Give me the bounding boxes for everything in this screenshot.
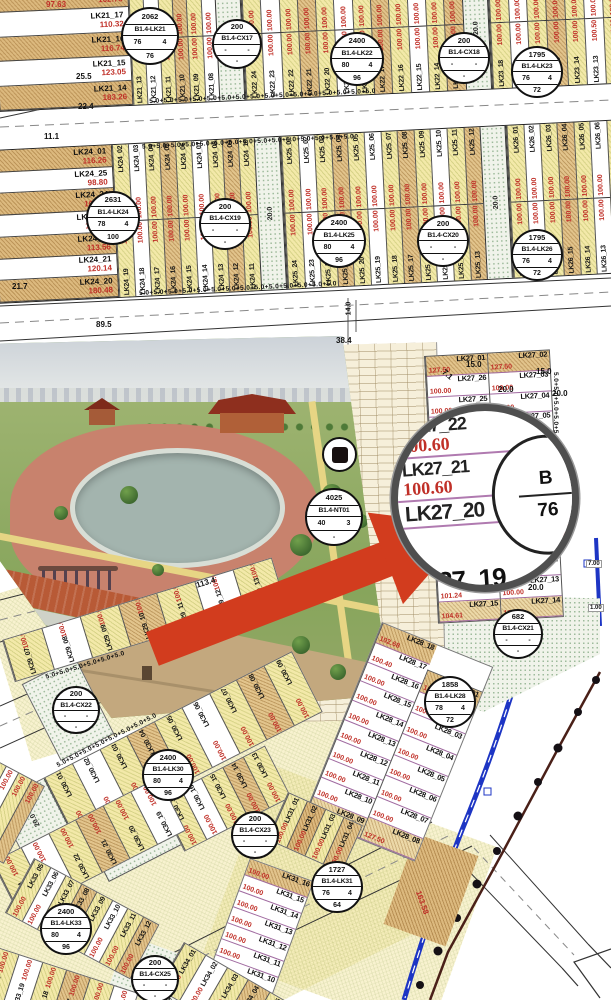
parcel-label: LK29_08 <box>62 636 77 664</box>
lk23-strip: LK23_01 100.00 LK23_02 100.00 LK23_03 10… <box>486 0 611 89</box>
parcel-label: LK30_14 <box>231 762 249 789</box>
parcel-area-value: 100.00 <box>224 802 240 824</box>
parcel-area-value: 100.00 <box>293 830 308 852</box>
parcel-area-value: 100.00 <box>358 5 366 27</box>
parcel-area-value: 100.00 <box>571 0 579 17</box>
parcel-label: LK23_15 <box>555 58 563 85</box>
parcel-area-value: 97.63 <box>46 0 66 9</box>
parcel-row: LK21_14 183.26 <box>0 80 132 110</box>
parcel-label: LK23_18 <box>498 60 506 87</box>
photo-tree <box>292 636 310 654</box>
parcel-area-value: 100.00 <box>178 38 186 60</box>
parcel-area-value: 100.00 <box>289 189 297 211</box>
parcel-cell: 100.00 <box>241 0 262 33</box>
parcel-area-value: 100.00 <box>151 196 159 218</box>
parcel-label: LK30_01 <box>56 770 74 797</box>
parcel-area-value: 100.50 <box>591 19 599 41</box>
parcel-area-value: 100.00 <box>267 711 283 733</box>
parcel-cell: 100.00 <box>424 0 445 25</box>
parcel-cell: 100.00 <box>259 0 280 33</box>
parcel-area-value: 100.00 <box>371 185 379 207</box>
parcel-area-value: 100.00 <box>456 206 464 228</box>
dimension-label: 14.0 <box>345 302 352 316</box>
parcel-area-value: 116.26 <box>82 155 106 165</box>
parcel-area-value: 100.00 <box>203 812 219 834</box>
dimension-label: 20.0 <box>29 812 41 827</box>
parcel-label: LK25_18 <box>392 256 400 283</box>
parcel-cell: 100.00 <box>171 0 188 37</box>
parcel-area-value: 180.48 <box>88 285 113 295</box>
parcel-label: LK25_20 <box>358 257 366 284</box>
lk24-strip: LK24_02 100.00 LK24_03 100.00 LK24_04 10… <box>111 138 261 297</box>
parcel-area-value: 100.00 <box>451 26 459 48</box>
parcel-area-value: 100.00 <box>191 13 199 35</box>
parcel-label: LK30_16 <box>189 783 207 810</box>
parcel-label: LK26_02 <box>529 125 537 152</box>
parcel-band-lk24-lk26: LK24_01 116.26 LK24_25 98.80 LK24_24 100… <box>0 118 611 303</box>
parcel-label: LK26_15 <box>568 247 576 274</box>
parcel-area-value: 100.00 <box>134 16 142 38</box>
parcel-area-value: 100.00 <box>285 9 293 31</box>
parcel-area-value: 100.00 <box>44 967 57 990</box>
parcel-label: LK26_16 <box>551 248 559 275</box>
parcel-area-value: 100.00 <box>268 34 276 56</box>
parcel-area-value: 102.78 <box>98 0 123 4</box>
parcel-area-value: 100.00 <box>503 609 525 618</box>
parcel-label: LK22_13 <box>452 62 460 89</box>
parcel-area-value: 100.00 <box>377 29 385 51</box>
photo-tree <box>120 486 138 504</box>
parcel-label: LK25_12 <box>468 128 476 155</box>
parcel-area-value: 100.00 <box>215 217 223 239</box>
parcel-cell: 100.00 <box>332 0 353 29</box>
parcel-cell: 100.00 <box>405 0 426 26</box>
parcel-label: LK25_15 <box>441 253 449 280</box>
parcel-cell: LK23_05 100.00 <box>563 0 584 19</box>
parcel-area-value: 100.00 <box>376 5 384 27</box>
parcel-label: LK22_16 <box>397 65 405 92</box>
black-square-icon <box>332 447 348 463</box>
cx17-greenway-strip: 20.0 <box>214 0 246 101</box>
parcel-label: LK25_19 <box>375 256 383 283</box>
parcel-area-value: 100.00 <box>565 200 573 222</box>
parcel-label: LK25_13 <box>474 252 482 279</box>
parcel-label: LK25_06 <box>369 133 377 160</box>
parcel-label: LK33_18 <box>35 991 50 1000</box>
parcel-area-value: 100.00 <box>421 183 429 205</box>
parcel-area-value: 100.00 <box>330 846 345 868</box>
road-length-label: 38.4 <box>336 336 352 345</box>
parcel-area-value: 100.00 <box>502 589 524 598</box>
parcel-area-value: 100.00 <box>414 27 422 49</box>
parcel-label: LK30_05 <box>166 715 184 742</box>
parcel-area-value: 100.00 <box>185 753 201 775</box>
parcel-area-value: 100.00 <box>231 217 239 239</box>
parcel-area-value: 100.00 <box>247 216 255 238</box>
parcel-area-value: 100.00 <box>406 208 414 230</box>
parcel-label: LK30_06 <box>193 701 211 728</box>
parcel-cell: LK23_03 100.00 <box>525 0 546 20</box>
photo-tree <box>354 514 368 528</box>
parcel-area-value: 100.00 <box>471 180 479 202</box>
parcel-label: LK25_10 <box>435 130 443 157</box>
parcel-area-value: 100.00 <box>213 739 229 761</box>
parcel-area-value: 100.00 <box>240 725 256 747</box>
parcel-area-value: 116.74 <box>101 43 125 53</box>
parcel-area-value: 100.00 <box>472 205 480 227</box>
parcel-label: LK25_17 <box>408 255 416 282</box>
parcel-area-value: 100.00 <box>245 191 253 213</box>
parcel-area-value: 100.00 <box>438 182 446 204</box>
parcel-area-value: 100.00 <box>214 193 222 215</box>
parcel-label: LK30_20 <box>128 825 146 852</box>
parcel-area-value: 100.00 <box>597 174 605 196</box>
parcel-area-value: 100.00 <box>388 184 396 206</box>
parcel-area-value: 100.00 <box>599 199 607 221</box>
parcel-area-value: 100.00 <box>355 186 363 208</box>
parcel-area-value: 100.00 <box>267 780 283 802</box>
parcel-area-value: 100.00 <box>304 32 312 54</box>
parcel-area-value: 100.00 <box>413 3 421 25</box>
parcel-area-value: 100.00 <box>267 10 275 32</box>
cadastral-map-page: LK21_18 102.78 LK21_17 110.32 LK21_16 11… <box>0 0 611 1000</box>
parcel-label: LK29_07 <box>24 647 39 675</box>
parcel-area-value: 100.00 <box>552 0 560 18</box>
photo-tree <box>290 534 312 556</box>
parcel-area-value: 104.61 <box>442 612 464 621</box>
parcel-label: LK22_14 <box>434 63 442 90</box>
parcel-label: LK24_03 <box>133 145 141 172</box>
parcel-label: LK24_19 <box>123 269 131 296</box>
parcel-cell: LK23_07 100.00 <box>601 0 611 17</box>
parcel-area-value: 100.00 <box>454 181 462 203</box>
dimension-label: 21.7 <box>12 282 28 291</box>
parcel-label: LK26_04 <box>562 124 570 151</box>
parcel-label: LK30_02 <box>83 756 101 783</box>
parcel-label: LK30_08 <box>248 673 266 700</box>
parcel-area-value: 100.00 <box>516 203 524 225</box>
dimension-label: 25.5 <box>76 72 92 81</box>
parcel-label: LK26_05 <box>578 123 586 150</box>
parcel-label: LK30_07 <box>221 687 239 714</box>
photo-tree <box>54 506 68 520</box>
dimension-label: 20.0 <box>552 389 568 398</box>
parcel-cell: 100.00 <box>185 0 202 36</box>
parcel-area-value: 100.00 <box>119 198 127 220</box>
parcel-area-value: 100.00 <box>340 6 348 28</box>
parcel-area-value: 100.00 <box>290 214 298 236</box>
parcel-label: LK27_04 <box>520 391 549 400</box>
parcel-area-value: 100.00 <box>230 192 238 214</box>
parcel-area-value: 100.00 <box>323 212 331 234</box>
parcel-cell: LK23_01 100.00 <box>487 0 508 22</box>
parcel-area-value: 100.00 <box>549 201 557 223</box>
parcel-area-value: 100.00 <box>356 210 364 232</box>
parcel-cell: 100.00 <box>314 0 335 30</box>
parcel-label: LK26_17 <box>535 249 543 276</box>
parcel-area-value: 123.05 <box>101 68 126 78</box>
dimension-label: 15.0 <box>466 360 482 369</box>
parcel-area-value: 100.00 <box>168 220 176 242</box>
dimension-label: 7.00 <box>586 560 602 568</box>
parcel-label: LK29_09 <box>100 624 115 652</box>
parcel-label: LK25_07 <box>385 132 393 159</box>
block-code-fragment: B <box>538 467 553 490</box>
parcel-area-value: 100.00 <box>590 0 598 17</box>
dimension-label: 20.0 <box>528 583 544 592</box>
parcel-cell: 100.00 <box>350 0 371 28</box>
parcel-area-value: 100.00 <box>5 855 21 877</box>
parcel-cell: 100.00 <box>296 0 317 31</box>
parcel-area-value: 100.00 <box>192 37 200 59</box>
parcel-area-value: 100.00 <box>531 177 539 199</box>
parcel-area-value: 100.00 <box>305 188 313 210</box>
parcel-area-value: 100.00 <box>572 20 580 42</box>
parcel-label: LK25_09 <box>419 131 427 158</box>
parcel-area-value: 100.00 <box>248 10 256 32</box>
parcel-label: LK26_01 <box>512 126 520 153</box>
parcel-cell: 100.00 <box>277 0 298 32</box>
parcel-area-value: 100.00 <box>275 821 290 843</box>
parcel-label: LK31_04 <box>338 821 355 848</box>
parcel-cell: 100.00 <box>142 0 159 38</box>
parcel-label: LK33_19 <box>11 983 26 1000</box>
parcel-area-value: 100.00 <box>340 211 348 233</box>
parcel-area-value: 100.00 <box>564 176 572 198</box>
stamp-divider <box>519 492 575 498</box>
parcel-label: LK26_18 <box>518 249 526 276</box>
parcel-cell: LK23_04 100.00 <box>544 0 565 20</box>
parcel-area-value: 100.00 <box>439 206 447 228</box>
parcel-cell: 100.00 <box>157 0 174 37</box>
parcel-area-value: 100.00 <box>162 14 170 36</box>
parcel-area-value: 100.00 <box>198 194 206 216</box>
parcel-area-value: 100.00 <box>177 14 185 36</box>
parcel-cell: 100.00 <box>387 0 408 27</box>
parcel-area-value: 100.00 <box>245 791 261 813</box>
parcel-area-value: 100.00 <box>199 218 207 240</box>
parcel-area-value: 100.00 <box>338 187 346 209</box>
parcel-area-value: 100.00 <box>21 959 34 982</box>
lk25-strip: LK25_01 100.00 LK25_02 100.00 LK25_03 10… <box>280 127 487 289</box>
parcel-area-value: 183.26 <box>102 92 127 102</box>
dimension-label: 20.0 <box>498 385 514 394</box>
parcel-area-value: 100.00 <box>496 24 504 46</box>
parcel-area-value: 100.00 <box>359 30 367 52</box>
parcel-area-value: 100.00 <box>389 209 397 231</box>
parcel-area-value: 100.00 <box>250 35 258 57</box>
parcel-area-value: 100.00 <box>149 39 157 61</box>
dimension-label: 22.4 <box>78 102 94 111</box>
parcel-area-value: 100.00 <box>148 15 156 37</box>
parcel-area-value: 100.38 <box>84 199 109 209</box>
parcel-label: LK27_26 <box>457 374 486 383</box>
parcel-label: LK34_04 <box>242 985 261 1000</box>
parcel-area-value: 100.00 <box>582 199 590 221</box>
parcel-area-value: 100.00 <box>120 953 136 975</box>
parcel-area-value: 110.32 <box>100 19 124 29</box>
parcel-cell: LK26_13 100.00 <box>593 197 611 273</box>
parcel-label: LK22_17 <box>379 66 387 93</box>
parcel-label: LK27_02 <box>518 351 547 360</box>
parcel-area-value: 100.00 <box>135 40 143 62</box>
parcel-area-value: 100.00 <box>405 184 413 206</box>
photo-distant-buildings <box>0 388 390 403</box>
parcel-area-value: 100.00 <box>341 31 349 53</box>
parcel-area-value: 100.00 <box>115 799 131 821</box>
parcel-label: LK33_20 <box>0 975 2 1000</box>
parcel-area-value: 100.00 <box>306 213 314 235</box>
parcel-area-value: 100.00 <box>188 986 205 1000</box>
parcel-label: LK30_21 <box>101 839 119 866</box>
parcel-area-value: 100.00 <box>182 823 198 845</box>
parcel-label: LK27_25 <box>458 395 487 404</box>
parcel-area-value: 100.00 <box>167 195 175 217</box>
parcel-area-value: 100.00 <box>87 813 103 835</box>
parcel-area-value: 100.00 <box>430 388 452 397</box>
parcel-area-value: 100.00 <box>0 951 10 974</box>
parcel-area-value: 100.00 <box>548 177 556 199</box>
parcel-label: LK26_14 <box>584 246 592 273</box>
photo-pavilion <box>220 413 284 433</box>
parcel-label: LK26_03 <box>545 125 553 152</box>
parcel-label: LK25_08 <box>402 132 410 159</box>
lk21-end-block: LK21_18 102.78 LK21_17 110.32 LK21_16 11… <box>0 0 132 111</box>
parcel-area-value: 100.00 <box>136 221 144 243</box>
parcel-area-value: 100.00 <box>163 39 171 61</box>
dimension-label: 1.00 <box>588 604 604 612</box>
parcel-cell: 100.00 <box>442 0 463 24</box>
parcel-area-value: 100.00 <box>395 4 403 26</box>
photo-tree <box>330 664 346 680</box>
parcel-label: LK25_21 <box>342 258 350 285</box>
parcel-area-value: 100.00 <box>116 990 129 1000</box>
photo-hut <box>89 409 115 425</box>
parcel-area-value: 100.00 <box>142 785 158 807</box>
dimension-label: 20.0 <box>493 195 501 209</box>
parcel-area-value: 100.00 <box>422 207 430 229</box>
photo-bare-tree <box>142 666 152 680</box>
parcel-area-value: 100.00 <box>432 26 440 48</box>
parcel-cell: LK23_06 100.00 <box>582 0 603 18</box>
parcel-label: LK30_13 <box>252 751 270 778</box>
parcel-area-value: 113.56 <box>87 242 111 252</box>
parcel-area-value: 100.00 <box>515 178 523 200</box>
parcel-area-value: 100.00 <box>322 188 330 210</box>
parcel-area-value: 100.00 <box>182 194 190 216</box>
lk26-strip: LK26_01 100.00 LK26_02 100.00 LK26_03 10… <box>506 119 611 277</box>
parcel-cell: 100.00 <box>199 0 216 35</box>
parcel-area-value: 100.00 <box>184 219 192 241</box>
parcel-cell: 100.00 <box>369 0 390 28</box>
parcel-area-value: 100.00 <box>206 37 214 59</box>
parcel-label: LK24_02 <box>117 146 125 173</box>
parcel-area-value: 100.00 <box>515 23 523 45</box>
parcel-area-value: 100.00 <box>396 28 404 50</box>
lk24-end-block: LK24_01 116.26 LK24_25 98.80 LK24_24 100… <box>0 145 118 303</box>
parcel-area-value: 100.00 <box>373 210 381 232</box>
parcel-area-value: 98.80 <box>87 177 107 187</box>
parcel-area-value: 100.00 <box>449 1 457 23</box>
road-length-label: 89.5 <box>96 320 112 329</box>
parcel-label: LK30_22 <box>73 853 91 880</box>
lk21-strip: 100.00 100.00 100.00 100.00 <box>127 0 219 105</box>
photo-tree <box>152 564 164 576</box>
parcel-area-value: 100.00 <box>121 222 129 244</box>
photo-pond <box>70 448 285 568</box>
parcel-label: LK25_14 <box>458 252 466 279</box>
parcel-label: LK28_01 <box>450 681 480 699</box>
parcel-area-value: 100.00 <box>553 21 561 43</box>
parcel-label: LK30_19 <box>155 811 173 838</box>
parcel-area-value: 101.24 <box>440 592 462 601</box>
parcel-area-value: 100.00 <box>60 827 76 849</box>
parcel-label: LK23_14 <box>573 57 581 84</box>
dimension-label: 15.0 <box>536 367 552 376</box>
parcel-label: LK27_15 <box>469 599 498 608</box>
parcel-area-value: 100.00 <box>323 31 331 53</box>
parcel-cell: LK23_02 100.00 <box>506 0 527 21</box>
parcel-label: LK22_15 <box>416 64 424 91</box>
parcel-area-value: 100.00 <box>322 7 330 29</box>
parcel-area-value: 100.00 <box>152 220 160 242</box>
magnifier-circle: LK27_22 100.60 LK27_21 100.60 LK27_20 10… <box>391 404 579 592</box>
parcel-label: LK23_17 <box>517 59 525 86</box>
parcel-label: LK30_09 <box>275 659 293 686</box>
parcel-area-value: 100.00 <box>311 838 326 860</box>
parcel-area-value: 100.00 <box>295 697 311 719</box>
parcel-area-value: 100.00 <box>68 974 81 997</box>
parcel-label: LK26_13 <box>601 245 609 272</box>
parcel-area-value: 100.00 <box>92 982 105 1000</box>
dimension-label: 11.1 <box>44 132 59 141</box>
parcel-area-value: 120.14 <box>87 264 112 274</box>
parcel-area-value: 100.00 <box>495 0 503 21</box>
parcel-row: LK27_15 104.61 <box>439 599 501 623</box>
lk22-strip: 100.00 100.00 100.00 100.00 <box>240 0 466 100</box>
magnifier-content: LK27_22 100.60 LK27_21 100.60 LK27_20 10… <box>392 405 578 591</box>
dimension-label: 20.0 <box>472 21 480 35</box>
parcel-area-value: 106.97 <box>85 220 110 230</box>
parcel-area-value: 127.50 <box>491 364 513 373</box>
parcel-area-value: 100.00 <box>514 0 522 20</box>
parcel-label: LK25_11 <box>452 129 460 156</box>
parcel-area-value: 100.00 <box>167 974 184 996</box>
dimension-label: 20.0 <box>267 206 275 220</box>
parcel-area-value: 100.00 <box>533 0 541 19</box>
landmark-symbol-icon <box>322 437 357 472</box>
parcel-label: LK30_15 <box>210 773 228 800</box>
parcel-label: LK23_13 <box>592 56 600 83</box>
parcel-label: LK30_04 <box>138 729 156 756</box>
cx18-greenway-strip: 20.0 <box>460 0 492 90</box>
parcel-area-value: 100.00 <box>286 33 294 55</box>
parcel-label: LK23_16 <box>536 58 544 85</box>
block-stat-fragment: 76 <box>537 499 560 522</box>
parcel-label: LK30_03 <box>111 743 129 770</box>
parcel-label: LK25_16 <box>425 254 433 281</box>
parcel-area-value: 100.00 <box>581 175 589 197</box>
dimension-label: 20.0 <box>226 32 234 46</box>
parcel-area-value: 100.00 <box>135 197 143 219</box>
parcel-cell: 100.00 <box>128 0 145 38</box>
parcel-label: LK21_13 <box>136 77 144 104</box>
parcel-area-value: 100.00 <box>431 2 439 24</box>
parcel-area-value: 100.00 <box>532 202 540 224</box>
parcel-area-value: 100.00 <box>303 8 311 30</box>
parcel-area-value: 100.00 <box>534 22 542 44</box>
parcel-area-value: 100.00 <box>205 12 213 34</box>
